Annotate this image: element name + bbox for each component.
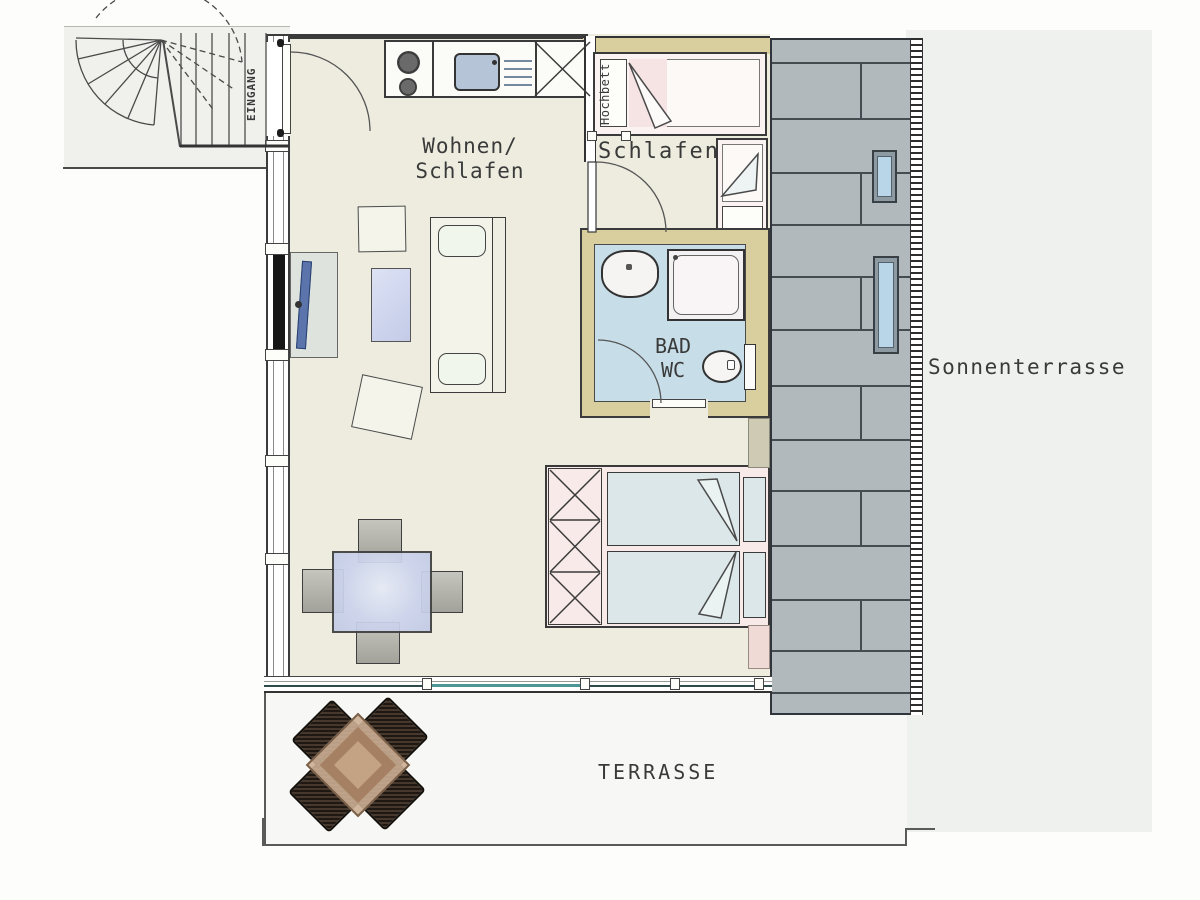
toilet-cistern (744, 344, 756, 390)
window-post (422, 678, 432, 690)
deck-plank-line (772, 224, 910, 226)
single-bed (716, 138, 768, 234)
deck-plank-line (772, 62, 910, 64)
wall-pier (748, 418, 770, 468)
bathroom-label-line1: BAD (643, 334, 703, 358)
toilet-seat-detail (727, 360, 735, 370)
wall-mullion (265, 243, 289, 255)
deck-plank-line (772, 439, 910, 441)
top-wall (266, 34, 588, 39)
bathroom-label-line2: WC (643, 358, 703, 382)
sofa-daybed (430, 217, 506, 393)
double-bed-mattress-bottom (607, 551, 740, 624)
landing-boundary-line (63, 167, 268, 169)
single-bed-pillow (722, 206, 763, 229)
deck-plank-joint (860, 599, 862, 650)
sun-terrace-deck (770, 38, 910, 715)
deck-plank-joint (860, 385, 862, 439)
wall-mullion (265, 553, 289, 565)
bedroom-label: Schlafen (598, 139, 720, 164)
hob-burner (397, 51, 420, 74)
glass-segment (264, 685, 432, 687)
bathroom-label: BAD WC (643, 334, 703, 382)
loft-bed-post (587, 131, 597, 141)
glass-line (264, 681, 772, 682)
deck-plank-line (772, 692, 910, 694)
wall-pier (748, 625, 770, 669)
terrace-step-top (905, 828, 935, 830)
deck-plank-joint (860, 62, 862, 118)
entry-door-hinge (277, 39, 284, 47)
sink-faucet (626, 264, 632, 270)
kitchen-counter (384, 40, 592, 98)
terrace-label: TERRASSE (598, 760, 718, 784)
drainer-line (504, 68, 532, 70)
terrace-railing (910, 38, 923, 715)
entry-door-leaf (282, 44, 291, 134)
sun-terrace-label: Sonnenterrasse (928, 355, 1126, 379)
kitchen-divider (432, 42, 434, 96)
double-bed-mattress-top (607, 472, 740, 546)
entry-door-hinge (277, 129, 284, 137)
stool (358, 206, 407, 253)
drainer-line (504, 84, 532, 86)
sun-lounger-cushion (878, 262, 894, 348)
sofa-pillow (438, 353, 486, 385)
hob-burner (399, 78, 417, 96)
entrance-label: EINGANG (245, 56, 262, 132)
sun-terrace-background (906, 30, 1152, 832)
shower (667, 249, 745, 321)
window-post (580, 678, 590, 690)
kitchen-sink (454, 53, 500, 91)
sofa-backrest (492, 218, 505, 392)
window-post (754, 678, 764, 690)
dark-glass-panel (273, 255, 285, 352)
bath-door-leaf (652, 399, 706, 408)
kitchen-divider (535, 42, 537, 96)
deck-plank-joint (860, 276, 862, 329)
coffee-table (371, 268, 411, 342)
sink-faucet (492, 60, 497, 65)
bathroom-sink (601, 250, 659, 298)
living-room-label: Wohnen/ Schlafen (405, 134, 535, 184)
tv-mount-knob (295, 301, 302, 308)
deck-plank-line (772, 545, 910, 547)
deck-plank-joint (860, 490, 862, 545)
shower-drain (673, 255, 678, 260)
bed-pillow (743, 552, 766, 618)
drainer-line (504, 76, 532, 78)
bed-wardrobe (548, 468, 602, 625)
single-bed-mattress (722, 144, 763, 202)
dining-table (332, 551, 432, 633)
sun-lounger-cushion (877, 156, 892, 197)
drainer-line (504, 60, 532, 62)
glass-segment-teal (432, 684, 582, 687)
bottom-window-wall (264, 676, 772, 693)
window-post (670, 678, 680, 690)
loft-bed-label: Hochbett (598, 58, 620, 130)
wall-mullion (265, 349, 289, 361)
wall-mullion (265, 140, 289, 152)
sun-lounger-large (873, 256, 899, 354)
deck-plank-line (772, 599, 910, 601)
living-room-label-line2: Schlafen (405, 159, 535, 184)
living-room-label-line1: Wohnen/ (405, 134, 535, 159)
sun-lounger-small (872, 150, 897, 203)
terrace-step-edge (905, 828, 907, 846)
sofa-pillow (438, 225, 486, 257)
deck-plank-line (772, 118, 910, 120)
deck-plank-joint (860, 172, 862, 224)
shower-tray (673, 255, 739, 315)
loft-bed-blanket-pink (629, 59, 667, 127)
terrace-notch (262, 818, 264, 846)
deck-plank-line (772, 385, 910, 387)
toilet-bowl (702, 350, 742, 383)
wall-mullion (265, 455, 289, 467)
floor-plan-canvas: Hochbett BAD WC (0, 0, 1200, 900)
deck-plank-line (772, 490, 910, 492)
deck-plank-line (772, 650, 910, 652)
bed-pillow (743, 477, 766, 542)
